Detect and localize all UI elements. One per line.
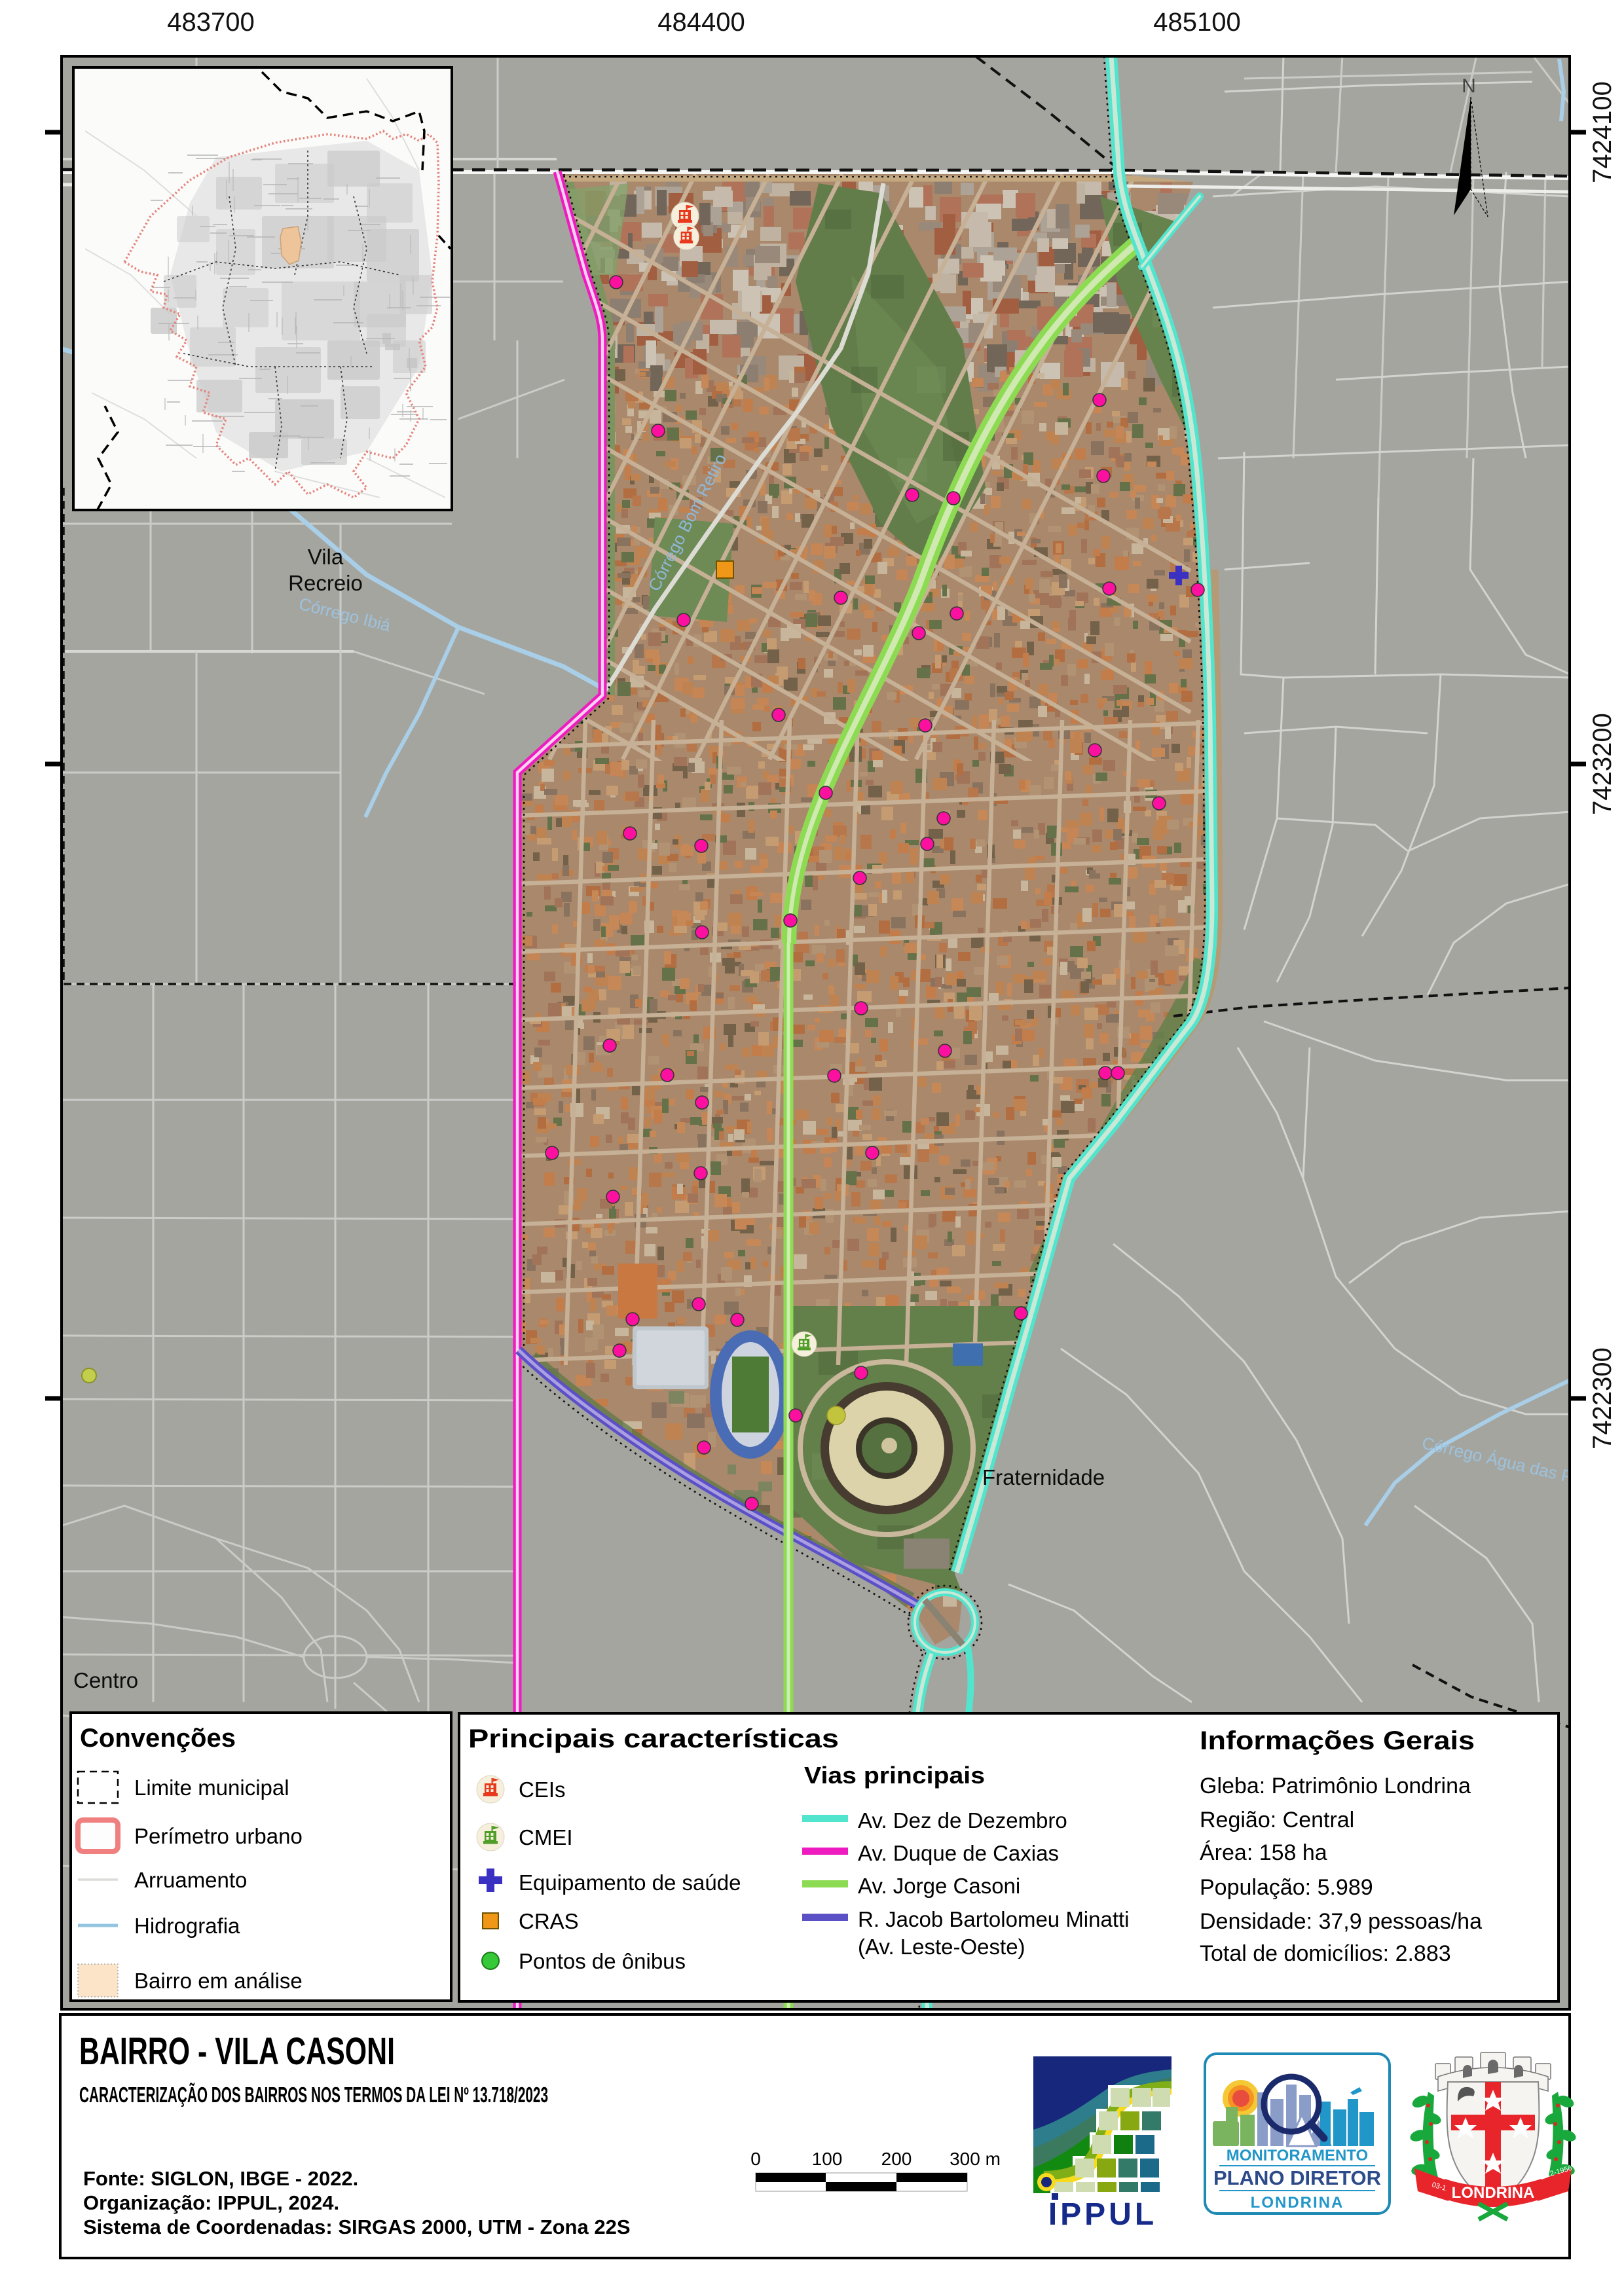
svg-text:Limite municipal: Limite municipal xyxy=(134,1776,289,1800)
svg-text:Av. Duque de Caxias: Av. Duque de Caxias xyxy=(858,1841,1059,1865)
svg-text:Gleba: Patrimônio Londrina: Gleba: Patrimônio Londrina xyxy=(1200,1774,1471,1798)
svg-text:R. Jacob Bartolomeu Minatti: R. Jacob Bartolomeu Minatti xyxy=(858,1907,1130,1931)
svg-text:Principais características: Principais características xyxy=(468,1724,839,1753)
svg-text:Organização: IPPUL, 2024.: Organização: IPPUL, 2024. xyxy=(83,2191,339,2214)
svg-text:Pontos de ônibus: Pontos de ônibus xyxy=(519,1949,686,1973)
svg-text:0: 0 xyxy=(750,2149,761,2169)
svg-text:MONITORAMENTO: MONITORAMENTO xyxy=(1227,2147,1368,2164)
svg-text:Informações Gerais: Informações Gerais xyxy=(1200,1726,1475,1755)
svg-text:População: 5.989: População: 5.989 xyxy=(1200,1875,1373,1900)
svg-text:7422300: 7422300 xyxy=(1588,1347,1617,1449)
svg-text:Av. Jorge Casoni: Av. Jorge Casoni xyxy=(858,1874,1020,1898)
svg-text:Fonte: SIGLON, IBGE - 2022.: Fonte: SIGLON, IBGE - 2022. xyxy=(83,2167,358,2190)
svg-text:CARACTERIZAÇÃO DOS BAIRROS NOS: CARACTERIZAÇÃO DOS BAIRROS NOS TERMOS DA… xyxy=(79,2083,548,2107)
svg-text:N: N xyxy=(1462,75,1476,97)
svg-text:Vila: Vila xyxy=(308,545,344,569)
svg-text:Perímetro urbano: Perímetro urbano xyxy=(134,1824,303,1848)
svg-text:7424100: 7424100 xyxy=(1588,81,1617,183)
svg-text:200: 200 xyxy=(881,2149,912,2169)
svg-text:100: 100 xyxy=(812,2149,843,2169)
svg-text:Hidrografia: Hidrografia xyxy=(134,1914,240,1938)
svg-text:484400: 484400 xyxy=(657,8,745,37)
svg-text:485100: 485100 xyxy=(1153,8,1240,37)
svg-text:Sistema de Coordenadas: SIRGAS: Sistema de Coordenadas: SIRGAS 2000, UTM… xyxy=(83,2215,631,2238)
svg-text:Arruamento: Arruamento xyxy=(134,1868,247,1892)
svg-text:Centro: Centro xyxy=(73,1668,138,1692)
svg-text:CRAS: CRAS xyxy=(519,1909,579,1933)
svg-text:BAIRRO - VILA CASONI: BAIRRO - VILA CASONI xyxy=(79,2030,395,2073)
svg-text:Convenções: Convenções xyxy=(80,1724,236,1753)
svg-text:Região: Central: Região: Central xyxy=(1200,1808,1354,1832)
svg-text:Bairro em análise: Bairro em análise xyxy=(134,1969,303,1993)
svg-text:LONDRINA: LONDRINA xyxy=(1452,2184,1535,2202)
svg-text:Total de domicílios: 2.883: Total de domicílios: 2.883 xyxy=(1200,1941,1451,1966)
svg-text:(Av. Leste-Oeste): (Av. Leste-Oeste) xyxy=(858,1935,1025,1959)
svg-text:CEIs: CEIs xyxy=(519,1777,566,1802)
svg-text:Fraternidade: Fraternidade xyxy=(982,1465,1105,1489)
svg-text:300 m: 300 m xyxy=(950,2149,1001,2169)
svg-text:IPPUL: IPPUL xyxy=(1048,2197,1157,2232)
svg-text:Vias principais: Vias principais xyxy=(804,1762,985,1789)
svg-text:Equipamento de saúde: Equipamento de saúde xyxy=(519,1870,741,1895)
svg-text:Área: 158 ha: Área: 158 ha xyxy=(1200,1840,1327,1865)
svg-text:Av. Dez de Dezembro: Av. Dez de Dezembro xyxy=(858,1808,1067,1832)
svg-text:483700: 483700 xyxy=(167,8,254,37)
svg-text:Recreio: Recreio xyxy=(288,571,363,595)
svg-text:PLANO DIRETOR: PLANO DIRETOR xyxy=(1213,2166,1381,2189)
svg-text:7423200: 7423200 xyxy=(1588,713,1617,815)
svg-text:LONDRINA: LONDRINA xyxy=(1251,2194,1344,2212)
svg-text:CMEI: CMEI xyxy=(519,1825,573,1850)
svg-text:Densidade: 37,9 pessoas/ha: Densidade: 37,9 pessoas/ha xyxy=(1200,1909,1482,1934)
